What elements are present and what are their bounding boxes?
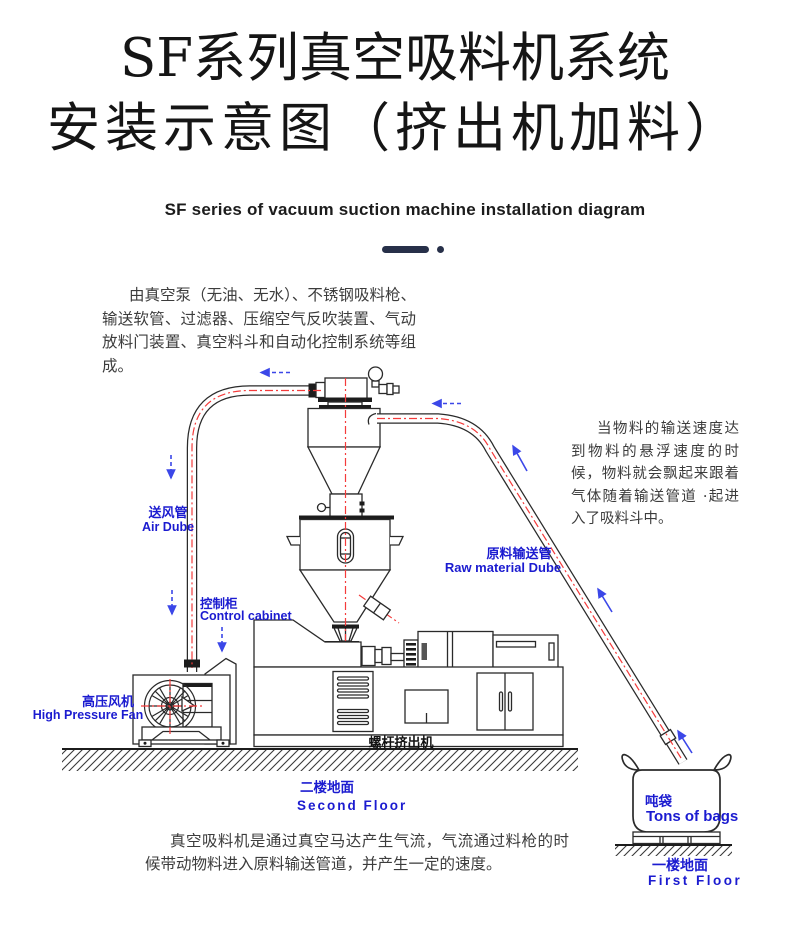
label-extruder-cn: 螺杆挤出机 — [368, 735, 433, 750]
vacuum-gauge-icon — [369, 367, 383, 381]
label-floor1-en: First Floor — [648, 873, 742, 888]
cyclone-hopper-body — [308, 409, 380, 448]
pallet — [633, 832, 720, 844]
first-floor-ground — [615, 845, 732, 856]
label-raw-pipe-cn: 原料输送管 — [486, 546, 551, 561]
label-floor1-cn: 一楼地面 — [652, 857, 708, 873]
screw-extruder — [254, 620, 563, 747]
motor-housing — [418, 632, 493, 669]
high-pressure-fan-unit — [133, 675, 230, 747]
label-fan-cn: 高压风机 — [82, 694, 134, 709]
label-air-pipe-cn: 送风管 — [147, 505, 187, 520]
label-control-cabinet-en: Control cabinet — [200, 609, 293, 623]
bag-handle-icon — [622, 755, 639, 770]
label-air-pipe-en: Air Dube — [142, 520, 194, 534]
bag-handle-icon — [714, 755, 731, 770]
label-fan-en: High Pressure Fan — [33, 708, 143, 722]
label-floor2-en: Second Floor — [297, 798, 407, 813]
label-bag-en: Tons of bags — [646, 808, 738, 825]
label-raw-pipe-en: Raw material Dube — [445, 560, 561, 575]
second-floor-ground — [62, 749, 578, 771]
installation-diagram: 送风管 Air Dube 控制柜 Control cabinet 高压风机 Hi… — [0, 0, 790, 943]
label-bag-cn: 吨袋 — [645, 793, 673, 809]
label-floor2-cn: 二楼地面 — [300, 779, 354, 795]
backblow-nozzle — [364, 596, 391, 620]
